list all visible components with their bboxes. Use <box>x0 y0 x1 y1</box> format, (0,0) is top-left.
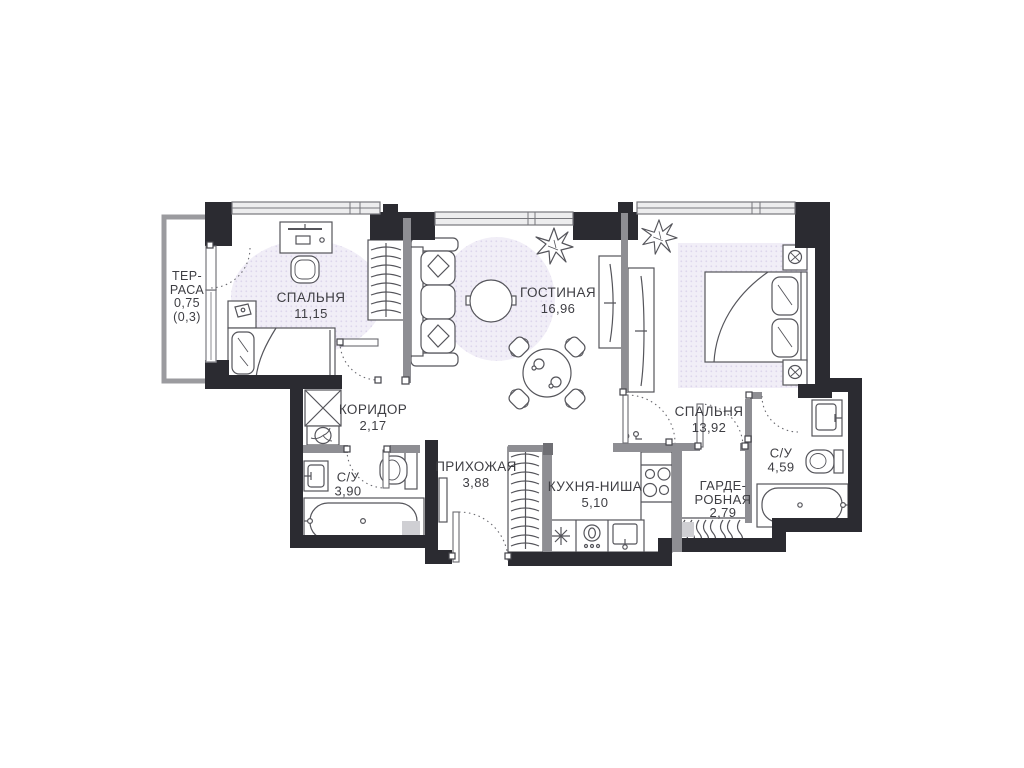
room-name: КОРИДОР <box>339 402 407 418</box>
room-label-living: ГОСТИНАЯ 16,96 <box>520 285 596 317</box>
room-label-bathroom1: С/У 3,90 <box>335 471 362 498</box>
sink <box>812 400 842 436</box>
stove-column <box>641 452 672 552</box>
room-name-line: РОБНАЯ <box>695 492 752 506</box>
plant-icon <box>642 220 677 254</box>
room-area: 3,90 <box>335 484 362 498</box>
desk-chair <box>291 256 319 283</box>
nightstand <box>228 301 256 328</box>
window <box>232 202 380 214</box>
nightstand-lamp <box>783 360 807 385</box>
room-label-corridor: КОРИДОР 2,17 <box>339 402 407 434</box>
door-leaf <box>383 450 389 488</box>
room-name: ГОСТИНАЯ <box>520 285 596 301</box>
door-leaf <box>623 395 628 443</box>
cabinet-living <box>599 256 622 348</box>
room-name: СПАЛЬНЯ <box>675 404 744 420</box>
single-bed <box>228 328 335 378</box>
room-label-wardrobe: ГАРДЕ- РОБНАЯ 2,79 <box>695 479 752 520</box>
room-name: С/У <box>768 447 795 461</box>
room-area: 4,59 <box>768 460 795 474</box>
duct-shaft <box>402 521 420 535</box>
plant-icon <box>536 228 573 264</box>
desk <box>280 222 332 253</box>
room-area: 2,79 <box>695 506 752 520</box>
double-bed <box>705 272 807 362</box>
sofa <box>411 238 458 366</box>
wardrobe-bedroom2 <box>628 268 654 392</box>
floor-plan-drawing <box>0 0 1024 768</box>
room-area: 13,92 <box>675 420 744 436</box>
room-name: СПАЛЬНЯ <box>277 290 346 306</box>
room-name: КУХНЯ-НИША <box>548 479 642 495</box>
nightstand-lamp <box>783 245 807 270</box>
room-label-bedroom1: СПАЛЬНЯ 11,15 <box>277 290 346 322</box>
window <box>637 202 795 214</box>
sink <box>304 461 328 491</box>
room-name: ПРИХОЖАЯ <box>435 459 517 475</box>
room-area: 11,15 <box>277 306 346 322</box>
door-leaf <box>206 246 216 290</box>
room-area: 3,88 <box>435 475 517 491</box>
dining-table <box>506 334 588 412</box>
door-swing-arc <box>459 512 508 561</box>
kitchen-counter <box>546 520 644 552</box>
room-name-line: ГАРДЕ- <box>695 479 752 493</box>
room-area: 2,17 <box>339 418 407 434</box>
door-swing-arc <box>340 342 378 380</box>
room-area: 0,75 <box>170 297 204 311</box>
toilet <box>806 450 843 473</box>
room-name: С/У <box>335 471 362 485</box>
wardrobe-hangers-bedroom1 <box>368 240 404 320</box>
room-name-line: РАСА <box>170 284 204 298</box>
door-leaf <box>340 339 378 346</box>
room-area: 16,96 <box>520 301 596 317</box>
washing-machine <box>305 390 341 426</box>
window <box>435 212 573 225</box>
room-area: 5,10 <box>548 495 642 511</box>
door-swing-arc <box>762 396 798 432</box>
room-label-terrace: ТЕР- РАСА 0,75 (0,3) <box>170 270 204 324</box>
floor-plan: ТЕР- РАСА 0,75 (0,3) СПАЛЬНЯ 11,15 ГОСТИ… <box>0 0 1024 768</box>
room-label-bedroom2: СПАЛЬНЯ 13,92 <box>675 404 744 436</box>
room-label-kitchen: КУХНЯ-НИША 5,10 <box>548 479 642 511</box>
room-label-bathroom2: С/У 4,59 <box>768 447 795 474</box>
ventilation-fan <box>307 426 339 445</box>
room-area-secondary: (0,3) <box>170 311 204 325</box>
room-name-line: ТЕР- <box>170 270 204 284</box>
room-label-hallway: ПРИХОЖАЯ 3,88 <box>435 459 517 491</box>
